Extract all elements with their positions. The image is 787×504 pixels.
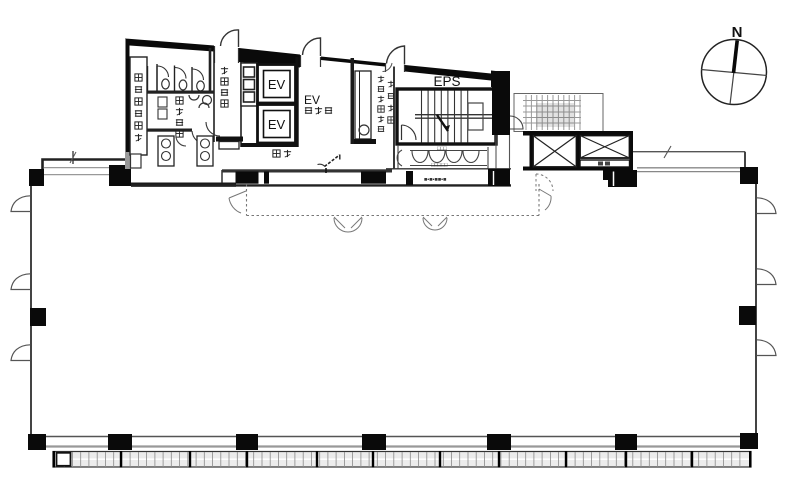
svg-text:N: N	[732, 24, 743, 41]
svg-text:■▪■▪■■▪■: ■▪■▪■■▪■	[424, 177, 446, 183]
svg-text:□□□: □□□	[437, 146, 448, 152]
svg-text:EV: EV	[268, 77, 286, 92]
svg-text:□□□□□: □□□□□	[431, 163, 448, 169]
svg-text:EV: EV	[268, 117, 286, 132]
svg-text:EV: EV	[304, 93, 320, 107]
svg-text:EPS: EPS	[433, 74, 460, 89]
